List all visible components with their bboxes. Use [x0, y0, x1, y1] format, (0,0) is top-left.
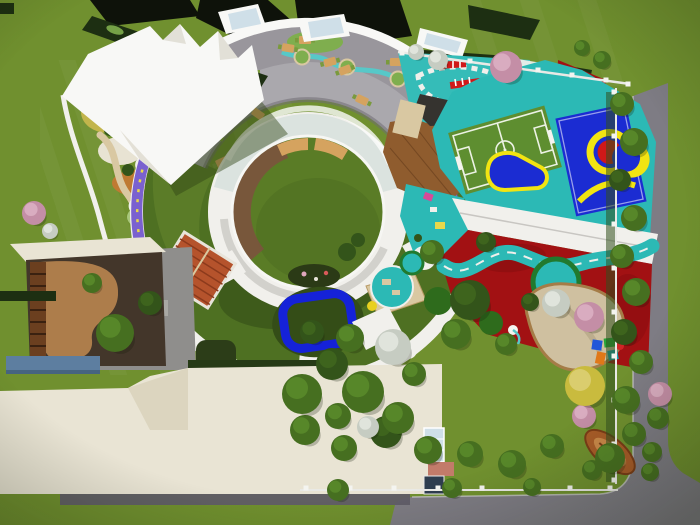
vignette — [0, 0, 700, 525]
site-plan-render — [0, 0, 700, 525]
